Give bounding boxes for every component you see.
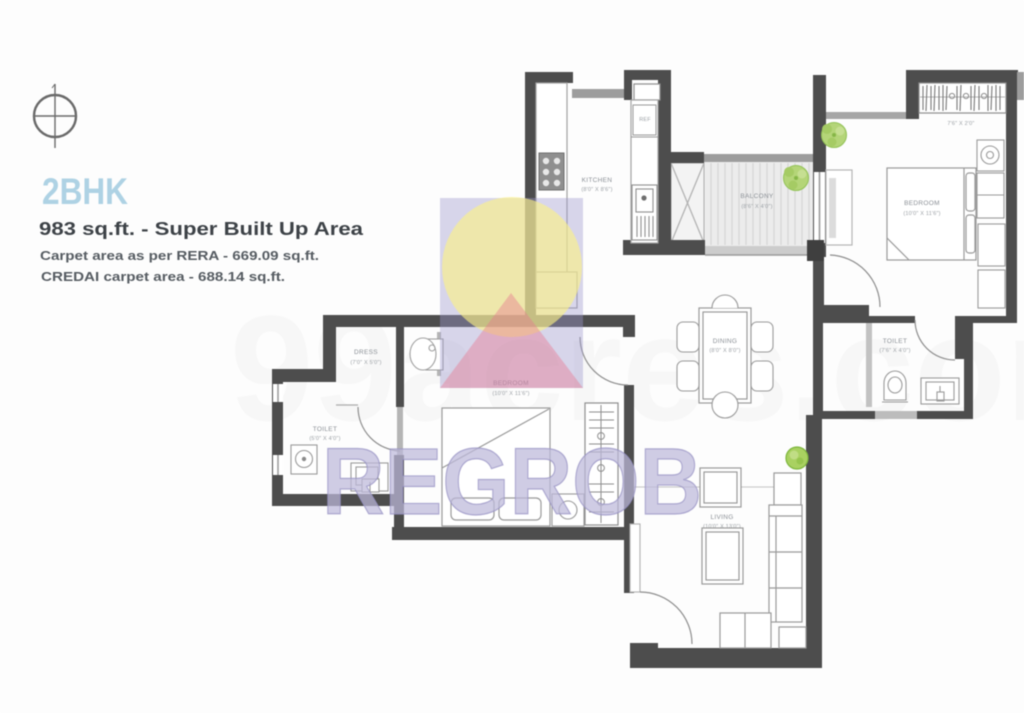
svg-text:DRESS: DRESS bbox=[354, 349, 378, 356]
svg-text:CREDAI carpet area - 688.14 sq: CREDAI carpet area - 688.14 sq.ft. bbox=[41, 269, 285, 284]
svg-text:(8'6" X 4'0"): (8'6" X 4'0") bbox=[741, 204, 772, 210]
svg-text:(8'0" X 8'0"): (8'0" X 8'0") bbox=[709, 348, 740, 354]
svg-text:2BHK: 2BHK bbox=[42, 171, 128, 212]
svg-text:REF: REF bbox=[639, 117, 651, 123]
svg-text:(7'6" X 4'0"): (7'6" X 4'0") bbox=[879, 348, 910, 354]
svg-text:(10'0" X 11'6"): (10'0" X 11'6") bbox=[903, 211, 940, 217]
svg-text:BALCONY: BALCONY bbox=[740, 193, 774, 200]
svg-text:TOILET: TOILET bbox=[883, 338, 907, 345]
svg-text:REGROB: REGROB bbox=[322, 429, 702, 535]
svg-text:(7'0" X 5'0"): (7'0" X 5'0") bbox=[350, 360, 381, 366]
svg-text:Carpet area as per RERA - 669.: Carpet area as per RERA - 669.09 sq.ft. bbox=[40, 248, 319, 263]
svg-text:BEDROOM: BEDROOM bbox=[904, 200, 940, 207]
svg-text:KITCHEN: KITCHEN bbox=[582, 177, 613, 184]
svg-text:983 sq.ft. - Super Built Up Ar: 983 sq.ft. - Super Built Up Area bbox=[39, 219, 364, 239]
svg-text:LIVING: LIVING bbox=[710, 514, 733, 521]
svg-text:(10'0" X 11'6"): (10'0" X 11'6") bbox=[492, 391, 529, 397]
svg-text:(8'0" X 8'6"): (8'0" X 8'6") bbox=[581, 187, 612, 193]
svg-text:7'6" X 2'0": 7'6" X 2'0" bbox=[947, 121, 974, 127]
svg-text:DINING: DINING bbox=[713, 338, 738, 345]
